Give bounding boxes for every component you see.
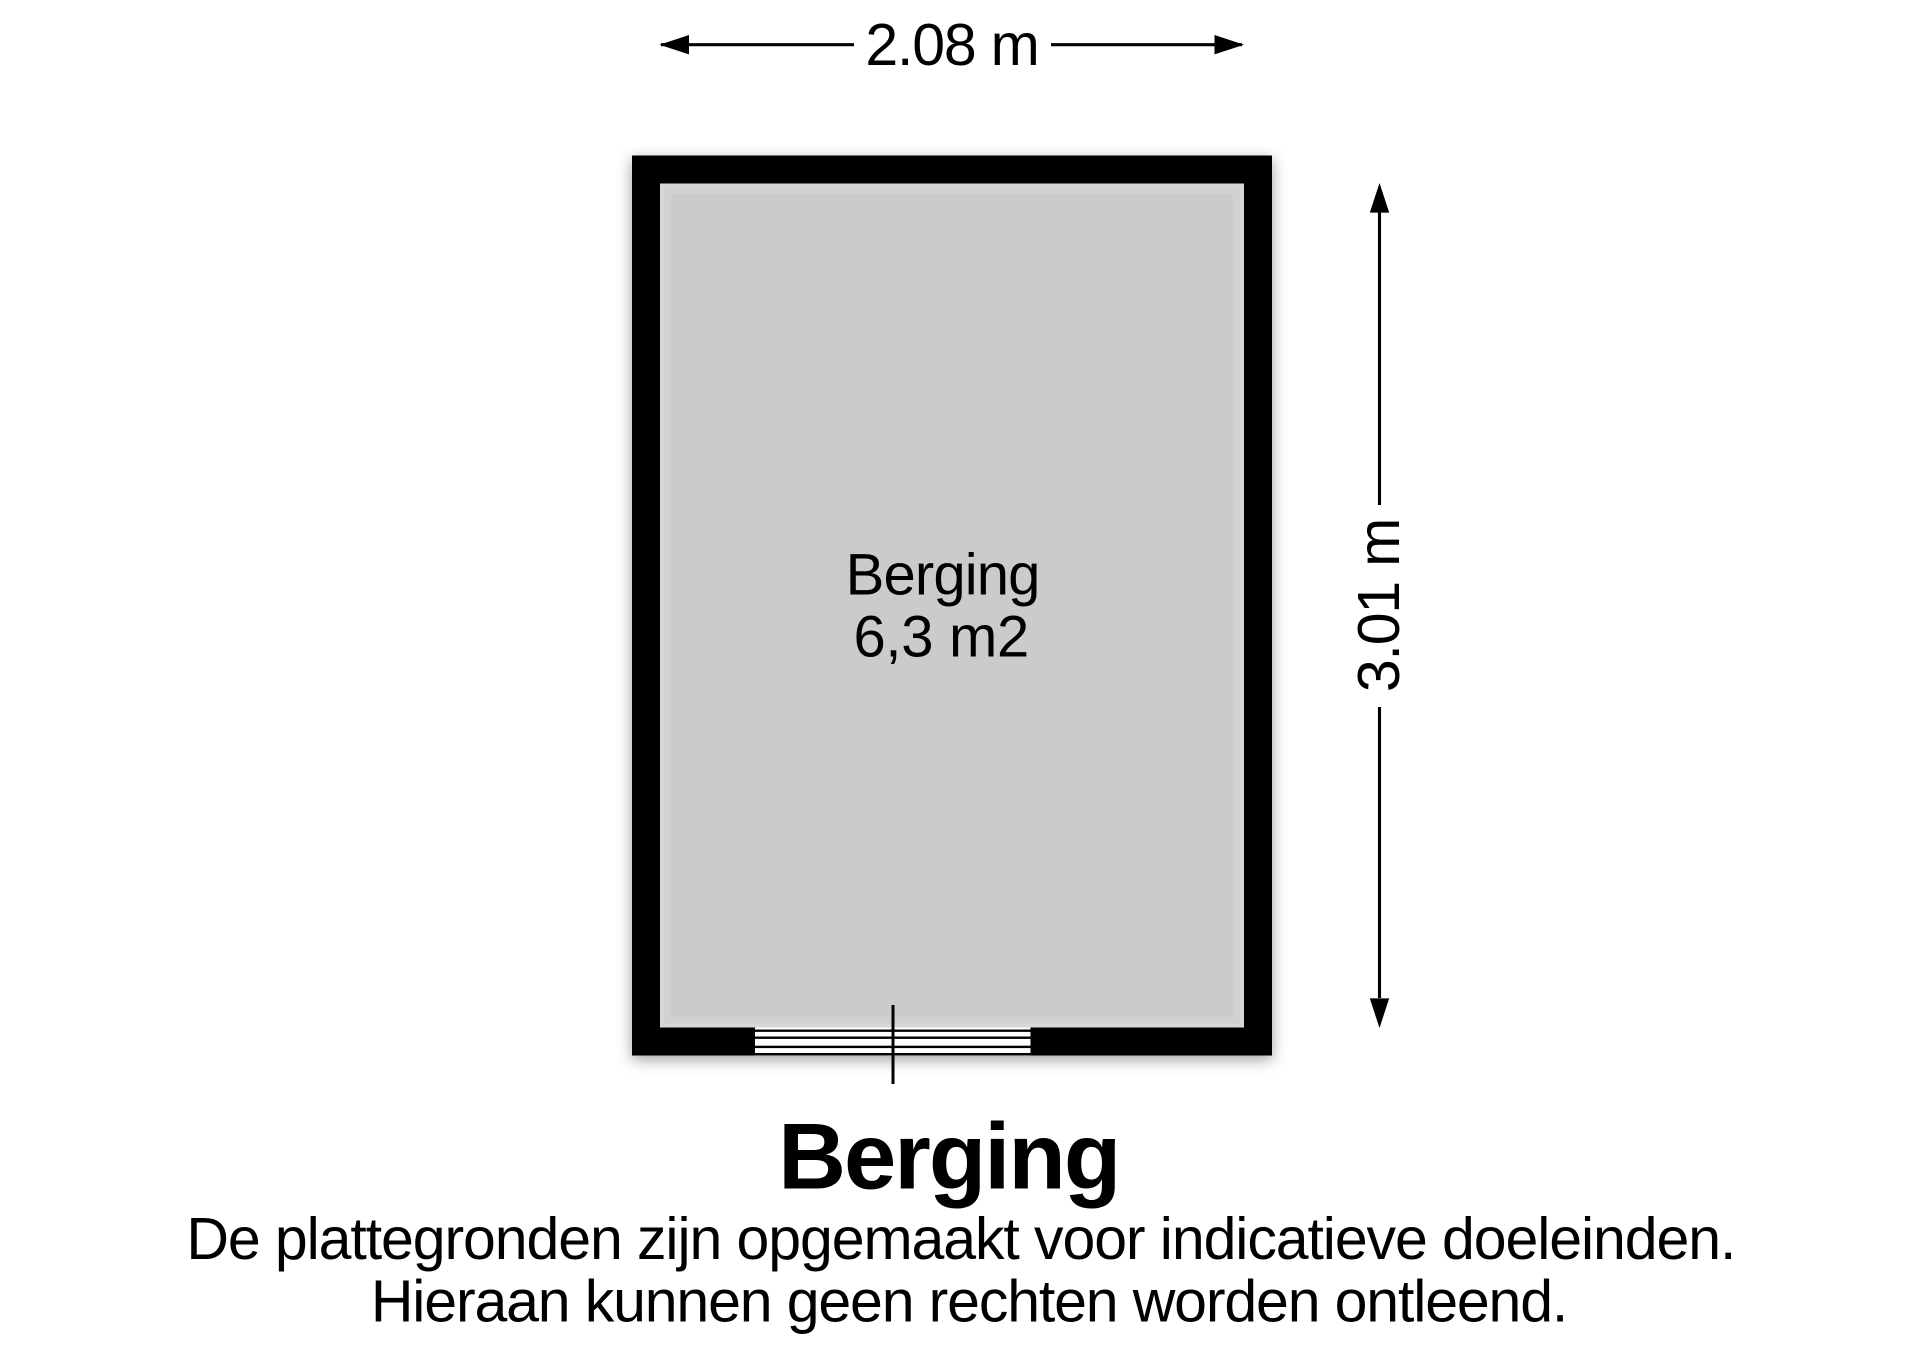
- svg-text:3.01 m: 3.01 m: [1346, 519, 1412, 692]
- svg-text:6,3 m2: 6,3 m2: [853, 604, 1029, 669]
- svg-text:Berging: Berging: [778, 1103, 1119, 1208]
- svg-text:Hieraan kunnen geen rechten wo: Hieraan kunnen geen rechten worden ontle…: [371, 1268, 1567, 1334]
- svg-text:2.08 m: 2.08 m: [865, 12, 1038, 78]
- svg-text:De plattegronden zijn opgemaak: De plattegronden zijn opgemaakt voor ind…: [186, 1206, 1735, 1272]
- svg-text:Berging: Berging: [846, 543, 1040, 608]
